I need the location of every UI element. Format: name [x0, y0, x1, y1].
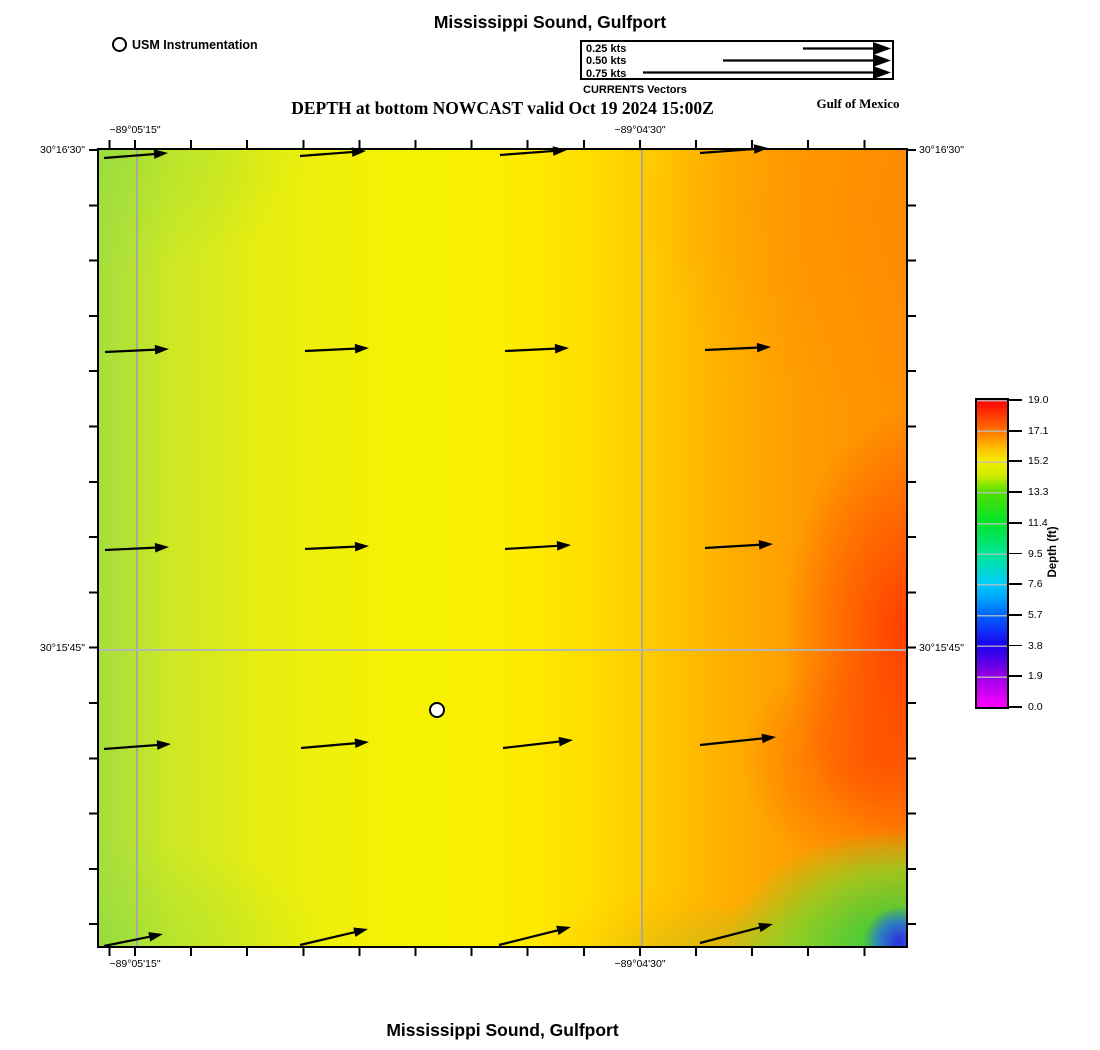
colorbar-title: Depth (ft) [1047, 526, 1059, 577]
colorbar-tick-mark [1009, 522, 1022, 524]
currents-legend-entry: 0.25 kts [586, 43, 626, 55]
instrument-legend-label: USM Instrumentation [132, 38, 258, 52]
colorbar-tick-label: 19.0 [1028, 394, 1048, 406]
colorbar-tick: 15.2 [1009, 455, 1048, 467]
gridline-horizontal [99, 649, 906, 651]
colorbar-tick-label: 11.4 [1028, 517, 1048, 529]
colorbar-tick: 19.0 [1009, 394, 1048, 406]
axis-label-right-north: 30°16'30" [919, 144, 964, 156]
forecast-subtitle: DEPTH at bottom NOWCAST valid Oct 19 202… [97, 98, 908, 119]
nowcast-figure: Mississippi Sound, Gulfport USM Instrume… [0, 0, 1100, 1050]
currents-legend-box [580, 40, 894, 80]
colorbar-tick-mark [1009, 399, 1022, 401]
axis-label-top-east: −89°04'30" [614, 124, 665, 136]
axis-label-top-west: −89°05'15" [109, 124, 160, 136]
colorbar-tick-label: 0.0 [1028, 701, 1043, 713]
colorbar-tick-labels: 19.017.115.213.311.49.57.65.73.81.90.0 [1009, 398, 1073, 709]
axis-label-left-south: 30°15'45" [0, 642, 85, 654]
colorbar-tick-label: 7.6 [1028, 578, 1043, 590]
colorbar-tick-mark [1009, 706, 1022, 708]
colorbar-tick-mark [1009, 553, 1022, 555]
currents-legend-labels: 0.25 kts 0.50 kts 0.75 kts [586, 43, 626, 80]
colorbar-tick-mark [1009, 430, 1022, 432]
currents-legend-entry: 0.75 kts [586, 68, 626, 80]
colorbar-tick-label: 17.1 [1028, 425, 1048, 437]
colorbar-tick-mark [1009, 675, 1022, 677]
colorbar-tick: 9.5 [1009, 548, 1043, 560]
colorbar-tick-label: 15.2 [1028, 455, 1048, 467]
axis-label-bottom-east: −89°04'30" [614, 958, 665, 970]
axis-label-right-south: 30°15'45" [919, 642, 964, 654]
depth-heatmap [97, 148, 908, 948]
gridline-vertical-east [641, 150, 643, 946]
page-title-bottom: Mississippi Sound, Gulfport [97, 1020, 908, 1041]
page-title: Mississippi Sound, Gulfport [0, 12, 1100, 33]
colorbar-tick-label: 1.9 [1028, 670, 1043, 682]
colorbar-tick: 3.8 [1009, 640, 1043, 652]
colorbar-tick-mark [1009, 645, 1022, 647]
gridline-vertical-west [136, 150, 138, 946]
axis-ticks-left [89, 148, 97, 948]
colorbar-tick: 5.7 [1009, 609, 1043, 621]
colorbar-tick-label: 3.8 [1028, 640, 1043, 652]
axis-label-left-north: 30°16'30" [0, 144, 85, 156]
colorbar-tick: 0.0 [1009, 701, 1043, 713]
currents-legend-title: CURRENTS Vectors [583, 84, 687, 96]
colorbar-tick-label: 9.5 [1028, 548, 1043, 560]
colorbar-tick: 1.9 [1009, 670, 1043, 682]
depth-colorbar [975, 398, 1009, 709]
axis-ticks-top [97, 140, 908, 148]
colorbar-tick-label: 5.7 [1028, 609, 1043, 621]
colorbar-tick: 17.1 [1009, 425, 1048, 437]
instrument-legend: USM Instrumentation [112, 37, 258, 52]
axis-ticks-bottom [97, 948, 908, 956]
colorbar-tick-mark [1009, 583, 1022, 585]
colorbar-tick: 7.6 [1009, 578, 1043, 590]
colorbar-tick-mark [1009, 460, 1022, 462]
colorbar-tick: 11.4 [1009, 517, 1048, 529]
colorbar-tick: 13.3 [1009, 486, 1048, 498]
axis-ticks-right [908, 148, 916, 948]
axis-label-bottom-west: −89°05'15" [109, 958, 160, 970]
instrument-marker [429, 702, 445, 718]
colorbar-tick-label: 13.3 [1028, 486, 1048, 498]
currents-legend-entry: 0.50 kts [586, 55, 626, 67]
colorbar-tick-mark [1009, 614, 1022, 616]
instrument-circle-icon [112, 37, 127, 52]
colorbar-tick-mark [1009, 491, 1022, 493]
region-label: Gulf of Mexico [810, 96, 906, 112]
